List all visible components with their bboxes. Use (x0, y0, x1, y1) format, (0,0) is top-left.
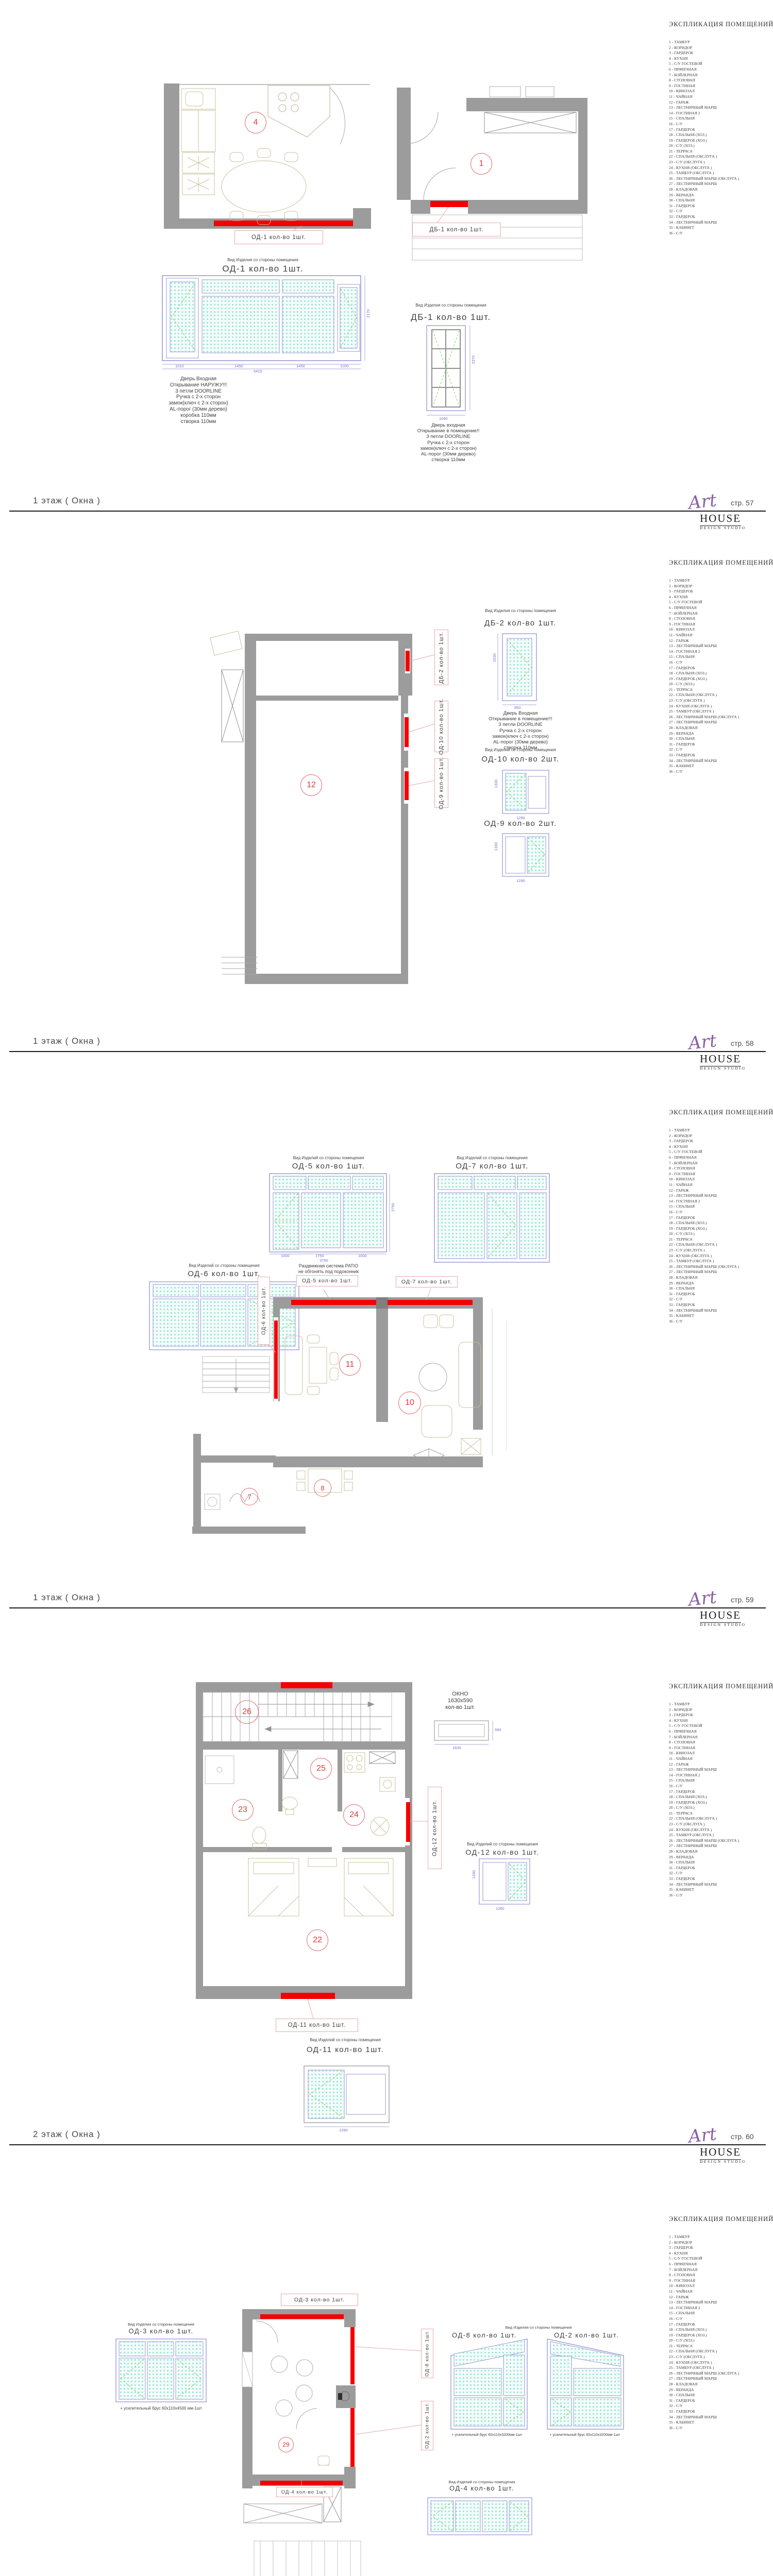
db2-notes: Дверь Входная Открывание в помещение!!! … (479, 710, 562, 751)
room-circle-24: 24 (343, 1804, 365, 1826)
window-strip-od8 (350, 2327, 355, 2384)
od2-title: ОД-2 кол-во 1шт. (550, 2331, 623, 2339)
legend-item: 13 - ЛЕСТНИЧНЫЙ МАРШ (669, 643, 769, 649)
legend-item: 22 - СПАЛЬНЯ (ОБСЛУГА ) (669, 692, 769, 698)
legend-item: 32 - С/У (669, 1871, 769, 1876)
legend-item: 30 - СПАЛЬНЯ (669, 736, 769, 742)
window-strip-od10 (405, 717, 409, 747)
plan-label-od9: ОД-9 кол-во 1шт. (434, 758, 448, 808)
kitchen-counter (181, 89, 215, 195)
od4-elevation (428, 2498, 532, 2535)
stairs (203, 1357, 270, 1393)
room-circle-23: 23 (232, 1799, 254, 1821)
plan-label-od2: ОД-2 кол-во 1шт. (421, 2401, 433, 2450)
od6-view-caption: Вид Изделий со стороны помещения (149, 1263, 299, 1268)
legend-item: 30 - СПАЛЬНЯ (669, 198, 769, 204)
long-wardrobe (244, 2504, 322, 2523)
legend-item: 32 - С/У (669, 209, 769, 214)
legend-item: 27 - ЛЕСТНИЧНЫЙ МАРШ (669, 1843, 769, 1849)
legend-item: 33 - ГАРДЕРОБ (669, 2409, 769, 2415)
legend-item: 2 - КОРИДОР (669, 584, 769, 589)
plan-label-od6: ОД-6 кол-во 1шт. (258, 1277, 270, 1345)
db2-view-caption: Вид Изделия со стороны помещения (474, 608, 567, 613)
plan-label-od7: ОД-7 кол-во 1шт. (396, 1276, 458, 1287)
db1-dim-height: 2370 (471, 355, 476, 364)
db2-title: ДБ-2 кол-во 1шт. (474, 619, 567, 628)
legend-item: 6 - ПРАЧЕЧНАЯ (669, 2262, 769, 2267)
legend-item: 22 - СПАЛЬНЯ (ОБСЛУГА ) (669, 1242, 769, 1248)
od3-note: + усилительный брус 60х110х4500 мм-1шт (106, 2406, 216, 2411)
room-circle-7: 7 (241, 1488, 258, 1505)
legend-item: 18 - СПАЛЬНЯ (ХОЗ.) (669, 671, 769, 676)
od1-dim-seg3: 1450 (296, 364, 305, 368)
legend-item: 15 - СПАЛЬНЯ (669, 116, 769, 122)
legend-item: 9 - ГОСТИНАЯ (669, 1745, 769, 1751)
legend-item: 36 - С/У (669, 1893, 769, 1899)
legend-item: 21 - ТЕРРАСА (669, 149, 769, 155)
floor-plan-3-svg (0, 1095, 773, 1643)
legend-item: 20 - С/У (ХОЗ.) (669, 1805, 769, 1811)
legend-items: 1 - ТАМБУР2 - КОРИДОР3 - ГАРДЕРОБ4 - КУХ… (669, 40, 769, 236)
legend-item: 36 - С/У (669, 769, 769, 775)
legend-item: 2 - КОРИДОР (669, 1133, 769, 1139)
legend-item: 11 - ЧАЙНАЯ (669, 2289, 769, 2295)
legend-item: 35 - КАБИНЕТ (669, 225, 769, 231)
od5-dim-total: 3750 (320, 1258, 328, 1263)
od8-note: + усилительный брус 60х110х3200мм-1шт (443, 2433, 531, 2437)
legend-item: 36 - С/У (669, 2426, 769, 2431)
legend-items: 1 - ТАМБУР2 - КОРИДОР3 - ГАРДЕРОБ4 - КУХ… (669, 578, 769, 774)
logo-house-text: HOUSE (700, 1609, 741, 1623)
od12-view-caption: Вид Изделий со стороны помещения (453, 1842, 551, 1846)
legend-item: 15 - СПАЛЬНЯ (669, 1778, 769, 1784)
legend-item: 24 - КУХНЯ (ОБСЛУГА ) (669, 1827, 769, 1833)
legend-item: 3 - ГАРДЕРОБ (669, 2245, 769, 2251)
floor-plan-2-svg (0, 548, 773, 1095)
od4-view-caption: Вид Изделий со стороны помещения (441, 2480, 523, 2484)
legend-item: 5 - С/У ГОСТЕВОЙ (669, 1149, 769, 1155)
plan-tambour-walls (397, 88, 587, 214)
legend-item: 10 - КИНОЗАЛ (669, 1177, 769, 1182)
legend-item: 30 - СПАЛЬНЯ (669, 1860, 769, 1866)
legend-item: 1 - ТАМБУР (669, 1128, 769, 1133)
window-strip-od6 (274, 1320, 278, 1399)
legend-item: 4 - КУХНЯ (669, 595, 769, 600)
legend-item: 25 - ТАМБУР (ОБСЛУГА ) (669, 709, 769, 715)
room-circle-11: 11 (339, 1354, 361, 1376)
legend-item: 20 - С/У (ХОЗ.) (669, 143, 769, 149)
legend-item: 17 - ГАРДЕРОБ (669, 2322, 769, 2328)
legend-title: ЭКСПЛИКАЦИЯ ПОМЕЩЕНИЙ (669, 2215, 769, 2223)
plan-label-od12: ОД-12 кол-во 1шт. (428, 1787, 442, 1869)
od12-dim-height: 1330 (472, 1870, 476, 1879)
legend-item: 8 - СТОЛОВАЯ (669, 1166, 769, 1172)
legend-item: 7 - БОЙЛЕРНАЯ (669, 2267, 769, 2273)
logo-art-script: Art (687, 1587, 717, 1610)
od1-view-caption: Вид Изделия со стороны помещения (206, 258, 320, 262)
legend-items: 1 - ТАМБУР2 - КОРИДОР3 - ГАРДЕРОБ4 - КУХ… (669, 1702, 769, 1898)
kitchen-stove-block (268, 86, 345, 144)
footer-page-number: стр. 57 (731, 499, 754, 507)
legend-item: 10 - КИНОЗАЛ (669, 627, 769, 633)
logo-house-text: HOUSE (700, 1053, 741, 1066)
od7-view-caption: Вид Изделий со стороны помещения (435, 1156, 549, 1160)
logo-studio-text: DESIGN STUDIO (700, 1066, 746, 1071)
legend-item: 21 - ТЕРРАСА (669, 1811, 769, 1817)
od1-notes: Дверь Входная Открывание НАРУЖУ!!! 3 пет… (155, 376, 242, 425)
legend-item: 17 - ГАРДЕРОБ (669, 127, 769, 133)
door-strip-db2 (406, 651, 410, 671)
od5-dim-seg3: 1000 (358, 1253, 367, 1258)
legend-item: 31 - ГАРДЕРОБ (669, 1866, 769, 1871)
legend-item: 25 - ТАМБУР (ОБСЛУГА ) (669, 171, 769, 176)
page-1: 4 1 ОД-1 кол-во 1шт. ДБ-1 кол-во 1шт. Ви… (0, 0, 773, 548)
legend-item: 25 - ТАМБУР (ОБСЛУГА ) (669, 2365, 769, 2371)
room7-washer (205, 1494, 220, 1510)
room-circle-1: 1 (470, 153, 492, 175)
page-2: 12 ДБ-2 кол-во 1шт. ОД-10 кол-во 1шт. ОД… (0, 548, 773, 1095)
od12-elevation (479, 1859, 530, 1904)
legend-item: 16 - С/У (669, 122, 769, 127)
db1-dim-width: 1060 (439, 416, 448, 421)
plan-label-db1: ДБ-1 кол-во 1шт. (412, 223, 501, 236)
legend-item: 14 - ГОСТИНАЯ 2 (669, 2306, 769, 2311)
legend-item: 14 - ГОСТИНАЯ 2 (669, 649, 769, 655)
window-strip-od11 (281, 1993, 335, 1999)
legend-item: 11 - ЧАЙНАЯ (669, 633, 769, 638)
plan4-walls (196, 1682, 412, 1999)
od9-dim-height: 1330 (494, 842, 498, 851)
legend-item: 26 - ЛЕСТНИЧНЫЙ МАРШ (ОБСЛУГА ) (669, 1838, 769, 1844)
legend-item: 21 - ТЕРРАСА (669, 2344, 769, 2349)
od1-dim-total: 5410 (254, 369, 262, 374)
plan-label-od1: ОД-1 кол-во 1шт. (234, 230, 323, 244)
legend-item: 12 - ГАРАЖ (669, 100, 769, 106)
legend-item: 1 - ТАМБУР (669, 2234, 769, 2240)
logo-studio-text: DESIGN STUDIO (700, 526, 746, 530)
plan-kitchen-walls (164, 83, 371, 229)
legend-item: 35 - КАБИНЕТ (669, 764, 769, 769)
legend-item: 34 - ЛЕСТНИЧНЫЙ МАРШ (669, 1882, 769, 1888)
staircase (203, 1692, 392, 1741)
legend-item: 22 - СПАЛЬНЯ (ОБСЛУГА ) (669, 2349, 769, 2354)
legend-item: 23 - С/У (ОБСЛУГА ) (669, 1248, 769, 1253)
od11-view-caption: Вид Изделий со стороны помещения (289, 2038, 402, 2042)
room-circle-26: 26 (235, 1700, 259, 1724)
od5-elevation (270, 1174, 390, 1254)
desk-chair (318, 2456, 329, 2465)
legend-item: 5 - С/У ГОСТЕВОЙ (669, 2256, 769, 2262)
legend-item: 35 - КАБИНЕТ (669, 1887, 769, 1893)
legend-item: 23 - С/У (ОБСЛУГА ) (669, 698, 769, 704)
drawing-album: { "legend": { "title": "ЭКСПЛИКАЦИЯ ПОМЕ… (0, 0, 773, 2576)
room-legend: ЭКСПЛИКАЦИЯ ПОМЕЩЕНИЙ 1 - ТАМБУР2 - КОРИ… (669, 559, 769, 774)
window-strip-od3 (260, 2314, 344, 2319)
plan-label-od4: ОД-4 кол-во 1шт. (276, 2487, 333, 2497)
legend-item: 24 - КУХНЯ (ОБСЛУГА ) (669, 2360, 769, 2366)
od2-note: + усилительный брус 60х110х3200мм-1шт (541, 2433, 629, 2437)
footer-rule (9, 511, 766, 512)
legend-item: 1 - ТАМБУР (669, 1702, 769, 1707)
db2-dim-height: 2030 (492, 653, 497, 662)
legend-item: 31 - ГАРДЕРОБ (669, 204, 769, 209)
stair-window-strip (281, 1682, 332, 1688)
room-circle-29: 29 (278, 2437, 294, 2452)
legend-item: 6 - ПРАЧЕЧНАЯ (669, 605, 769, 611)
legend-item: 12 - ГАРАЖ (669, 638, 769, 644)
legend-item: 9 - ГОСТИНАЯ (669, 1172, 769, 1177)
legend-item: 27 - ЛЕСТНИЧНЫЙ МАРШ (669, 2376, 769, 2382)
legend-item: 1 - ТАМБУР (669, 40, 769, 45)
legend-item: 23 - С/У (ОБСЛУГА ) (669, 1822, 769, 1827)
legend-item: 34 - ЛЕСТНИЧНЫЙ МАРШ (669, 1308, 769, 1314)
od10-view-caption: Вид Изделий со стороны помещения (474, 748, 567, 752)
footer-title: 1 этаж ( Окна ) (33, 1036, 100, 1046)
window-strip-od9 (405, 771, 409, 800)
legend-item: 34 - ЛЕСТНИЧНЫЙ МАРШ (669, 2415, 769, 2420)
legend-item: 25 - ТАМБУР (ОБСЛУГА ) (669, 1833, 769, 1838)
legend-item: 28 - КЛАДОВАЯ (669, 725, 769, 731)
legend-item: 13 - ЛЕСТНИЧНЫЙ МАРШ (669, 105, 769, 111)
page-5: Вид Изделия со стороны помещения ОД-3 ко… (0, 2192, 773, 2576)
legend-item: 20 - С/У (ХОЗ.) (669, 2338, 769, 2344)
legend-item: 19 - ГАРДЕРОБ (ХОЗ.) (669, 138, 769, 144)
page-4: 26 25 23 24 22 ОКНО 1630х590 кол-во 1шт.… (0, 1643, 773, 2192)
plan-garage-walls (245, 634, 412, 984)
legend-item: 29 - ВЕРАНДА (669, 1281, 769, 1286)
legend-item: 27 - ЛЕСТНИЧНЫЙ МАРШ (669, 1269, 769, 1275)
footer-title: 1 этаж ( Окна ) (33, 496, 100, 506)
od8-elevation (451, 2339, 527, 2429)
legend-item: 16 - С/У (669, 1784, 769, 1789)
legend-item: 8 - СТОЛОВАЯ (669, 616, 769, 622)
legend-item: 12 - ГАРАЖ (669, 1762, 769, 1768)
legend-item: 4 - КУХНЯ (669, 56, 769, 62)
legend-item: 35 - КАБИНЕТ (669, 1313, 769, 1319)
legend-item: 8 - СТОЛОВАЯ (669, 78, 769, 83)
od7-title: ОД-7 кол-во 1шт. (435, 1162, 549, 1171)
footer-rule (9, 1607, 766, 1608)
od11-elevation (304, 2066, 389, 2127)
window-strip-od1 (214, 221, 353, 226)
od4-title: ОД-4 кол-во 1шт. (441, 2484, 523, 2492)
legend-title: ЭКСПЛИКАЦИЯ ПОМЕЩЕНИЙ (669, 21, 769, 28)
legend-item: 18 - СПАЛЬНЯ (ХОЗ.) (669, 2327, 769, 2333)
entry-porch (412, 215, 582, 260)
legend-item: 34 - ЛЕСТНИЧНЫЙ МАРШ (669, 758, 769, 764)
plan-label-od5: ОД-5 кол-во 1шт. (296, 1275, 358, 1286)
legend-item: 13 - ЛЕСТНИЧНЫЙ МАРШ (669, 1193, 769, 1199)
legend-item: 7 - БОЙЛЕРНАЯ (669, 1161, 769, 1166)
wardrobe (222, 670, 243, 742)
footer-page-number: стр. 58 (731, 1039, 754, 1047)
plan-label-od11: ОД-11 кол-во 1шт. (276, 2019, 358, 2032)
legend-item: 10 - КИНОЗАЛ (669, 2283, 769, 2289)
legend-item: 8 - СТОЛОВАЯ (669, 1740, 769, 1745)
room-legend: ЭКСПЛИКАЦИЯ ПОМЕЩЕНИЙ 1 - ТАМБУР2 - КОРИ… (669, 1683, 769, 1898)
legend-item: 25 - ТАМБУР (ОБСЛУГА ) (669, 1259, 769, 1264)
legend-item: 12 - ГАРАЖ (669, 1188, 769, 1194)
legend-item: 33 - ГАРДЕРОБ (669, 753, 769, 758)
shared-view-caption: Вид Изделия со стороны помещения (492, 2325, 585, 2330)
legend-item: 15 - СПАЛЬНЯ (669, 2311, 769, 2316)
od9-dim-width: 1290 (516, 878, 525, 883)
legend-item: 11 - ЧАЙНАЯ (669, 94, 769, 100)
room-legend: ЭКСПЛИКАЦИЯ ПОМЕЩЕНИЙ 1 - ТАМБУР2 - КОРИ… (669, 21, 769, 236)
legend-item: 29 - ВЕРАНДА (669, 731, 769, 737)
legend-item: 8 - СТОЛОВАЯ (669, 2273, 769, 2278)
legend-item: 34 - ЛЕСТНИЧНЫЙ МАРШ (669, 220, 769, 226)
legend-item: 7 - БОЙЛЕРНАЯ (669, 1735, 769, 1740)
footer-page-number: стр. 60 (731, 2132, 754, 2141)
od5-dim-height: 2750 (391, 1203, 395, 1212)
legend-item: 22 - СПАЛЬНЯ (ОБСЛУГА ) (669, 1816, 769, 1822)
legend-item: 7 - БОЙЛЕРНАЯ (669, 611, 769, 617)
floor-plan-1-svg (0, 0, 773, 548)
od10-elevation (502, 770, 549, 814)
logo-art-script: Art (687, 2124, 717, 2147)
od7-elevation (434, 1174, 549, 1262)
legend-item: 9 - ГОСТИНАЯ (669, 622, 769, 628)
od1-dim-seg4: 1100 (340, 364, 348, 368)
legend-item: 18 - СПАЛЬНЯ (ХОЗ.) (669, 132, 769, 138)
legend-item: 27 - ЛЕСТНИЧНЫЙ МАРШ (669, 181, 769, 187)
db2-dim-width: 850 (514, 705, 521, 710)
legend-item: 18 - СПАЛЬНЯ (ХОЗ.) (669, 1794, 769, 1800)
od6-title: ОД-6 кол-во 1шт. (149, 1269, 299, 1278)
plan-label-od3: ОД-3 кол-во 1шт. (281, 2294, 358, 2306)
legend-item: 10 - КИНОЗАЛ (669, 89, 769, 94)
legend-item: 3 - ГАРДЕРОБ (669, 1139, 769, 1144)
legend-item: 15 - СПАЛЬНЯ (669, 1204, 769, 1210)
legend-item: 2 - КОРИДОР (669, 2240, 769, 2246)
legend-item: 3 - ГАРДЕРОБ (669, 1713, 769, 1718)
legend-item: 28 - КЛАДОВАЯ (669, 187, 769, 193)
legend-item: 27 - ЛЕСТНИЧНЫЙ МАРШ (669, 720, 769, 725)
legend-item: 4 - КУХНЯ (669, 2251, 769, 2257)
legend-item: 36 - С/У (669, 1319, 769, 1325)
room-circle-22: 22 (307, 1929, 328, 1951)
legend-item: 24 - КУХНЯ (ОБСЛУГА ) (669, 165, 769, 171)
logo-studio-text: DESIGN STUDIO (700, 2159, 746, 2164)
legend-item: 3 - ГАРДЕРОБ (669, 50, 769, 56)
adjacent-furniture (210, 631, 242, 655)
legend-item: 24 - КУХНЯ (ОБСЛУГА ) (669, 704, 769, 709)
od11-dim-width: 1260 (339, 2128, 348, 2132)
legend-item: 18 - СПАЛЬНЯ (ХОЗ.) (669, 1221, 769, 1226)
legend-item: 33 - ГАРДЕРОБ (669, 1302, 769, 1308)
legend-title: ЭКСПЛИКАЦИЯ ПОМЕЩЕНИЙ (669, 1683, 769, 1690)
tambour-wardrobe (484, 112, 576, 133)
legend-item: 2 - КОРИДОР (669, 1707, 769, 1713)
legend-item: 9 - ГОСТИНАЯ (669, 83, 769, 89)
db1-title: ДБ-1 кол-во 1шт. (399, 312, 502, 323)
legend-item: 11 - ЧАЙНАЯ (669, 1182, 769, 1188)
legend-item: 19 - ГАРДЕРОБ (ХОЗ.) (669, 1226, 769, 1232)
room-legend: ЭКСПЛИКАЦИЯ ПОМЕЩЕНИЙ 1 - ТАМБУР2 - КОРИ… (669, 2215, 769, 2431)
logo-house-text: HOUSE (700, 2146, 741, 2160)
legend-item: 11 - ЧАЙНАЯ (669, 1756, 769, 1762)
legend-item: 19 - ГАРДЕРОБ (ХОЗ.) (669, 676, 769, 682)
dining-table (222, 148, 306, 225)
legend-item: 32 - С/У (669, 1297, 769, 1302)
window-strip-od5 (291, 1300, 376, 1305)
legend-item: 14 - ГОСТИНАЯ 2 (669, 111, 769, 116)
od9-elevation (502, 834, 549, 876)
logo-house-text: HOUSE (700, 512, 741, 526)
od1-dim-seg1: 1010 (175, 364, 184, 368)
od1-dim-seg2: 1450 (234, 364, 243, 368)
legend-item: 20 - С/У (ХОЗ.) (669, 682, 769, 687)
footer-rule (9, 2144, 766, 2145)
okno-dim-height: 590 (495, 1727, 501, 1732)
legend-item: 6 - ПРАЧЕЧНАЯ (669, 67, 769, 73)
legend-item: 33 - ГАРДЕРОБ (669, 214, 769, 220)
legend-item: 29 - ВЕРАНДА (669, 1855, 769, 1860)
legend-item: 21 - ТЕРРАСА (669, 1237, 769, 1243)
db1-view-caption: Вид Изделия со стороны помещения (399, 303, 502, 308)
room-legend: ЭКСПЛИКАЦИЯ ПОМЕЩЕНИЙ 1 - ТАМБУР2 - КОРИ… (669, 1109, 769, 1324)
room-circle-10: 10 (398, 1392, 421, 1414)
legend-item: 14 - ГОСТИНАЯ 2 (669, 1773, 769, 1778)
legend-item: 31 - ГАРДЕРОБ (669, 1292, 769, 1297)
legend-item: 1 - ТАМБУР (669, 578, 769, 584)
od10-dim-height: 1330 (494, 779, 498, 788)
legend-item: 19 - ГАРДЕРОБ (ХОЗ.) (669, 2333, 769, 2338)
page-3: Вид Изделий со стороны помещения ОД-5 ко… (0, 1095, 773, 1643)
legend-item: 22 - СПАЛЬНЯ (ОБСЛУГА ) (669, 154, 769, 160)
od5-title: ОД-5 кол-во 1шт. (273, 1162, 384, 1171)
legend-items: 1 - ТАМБУР2 - КОРИДОР3 - ГАРДЕРОБ4 - КУХ… (669, 1128, 769, 1324)
plan-label-od10: ОД-10 кол-во 1шт. (434, 701, 448, 752)
legend-item: 14 - ГОСТИНАЯ 2 (669, 1199, 769, 1205)
legend-item: 30 - СПАЛЬНЯ (669, 2393, 769, 2398)
od11-title: ОД-11 кол-во 1шт. (289, 2045, 402, 2054)
od9-title: ОД-9 кол-во 2шт. (474, 819, 567, 828)
db1-notes: Дверь входная Открывание в помещение!! 3… (407, 422, 490, 463)
legend-item: 15 - СПАЛЬНЯ (669, 654, 769, 660)
legend-item: 33 - ГАРДЕРОБ (669, 1876, 769, 1882)
od10-title: ОД-10 кол-во 2шт. (474, 755, 567, 764)
legend-item: 20 - С/У (ХОЗ.) (669, 1231, 769, 1237)
bathroom-fixtures (205, 1751, 298, 1849)
legend-item: 26 - ЛЕСТНИЧНЫЙ МАРШ (ОБСЛУГА ) (669, 1264, 769, 1270)
footer-title: 2 этаж ( Окна ) (33, 2129, 100, 2140)
legend-item: 24 - КУХНЯ (ОБСЛУГА ) (669, 1253, 769, 1259)
room10-furniture (419, 1315, 481, 1454)
legend-item: 31 - ГАРДЕРОБ (669, 742, 769, 748)
door-strip-db1 (430, 201, 468, 207)
od3-view-caption: Вид Изделия со стороны помещения (119, 2322, 204, 2327)
od12-title: ОД-12 кол-во 1шт. (453, 1848, 551, 1856)
od1-title: ОД-1 кол-во 1шт. (206, 264, 320, 274)
room-circle-25: 25 (310, 1758, 332, 1780)
legend-item: 21 - ТЕРРАСА (669, 687, 769, 693)
logo-art-script: Art (687, 1030, 717, 1054)
od5-dim-seg2: 1750 (315, 1253, 324, 1258)
legend-item: 3 - ГАРДЕРОБ (669, 589, 769, 595)
legend-item: 30 - СПАЛЬНЯ (669, 1286, 769, 1292)
legend-item: 9 - ГОСТИНАЯ (669, 2278, 769, 2284)
legend-item: 32 - С/У (669, 2403, 769, 2409)
legend-item: 32 - С/У (669, 747, 769, 753)
terrace-below (254, 2541, 361, 2576)
legend-item: 5 - С/У ГОСТЕВОЙ (669, 600, 769, 605)
room-circle-12: 12 (300, 774, 322, 796)
legend-item: 13 - ЛЕСТНИЧНЫЙ МАРШ (669, 1767, 769, 1773)
logo-art-script: Art (687, 490, 717, 513)
legend-item: 13 - ЛЕСТНИЧНЫЙ МАРШ (669, 2300, 769, 2306)
